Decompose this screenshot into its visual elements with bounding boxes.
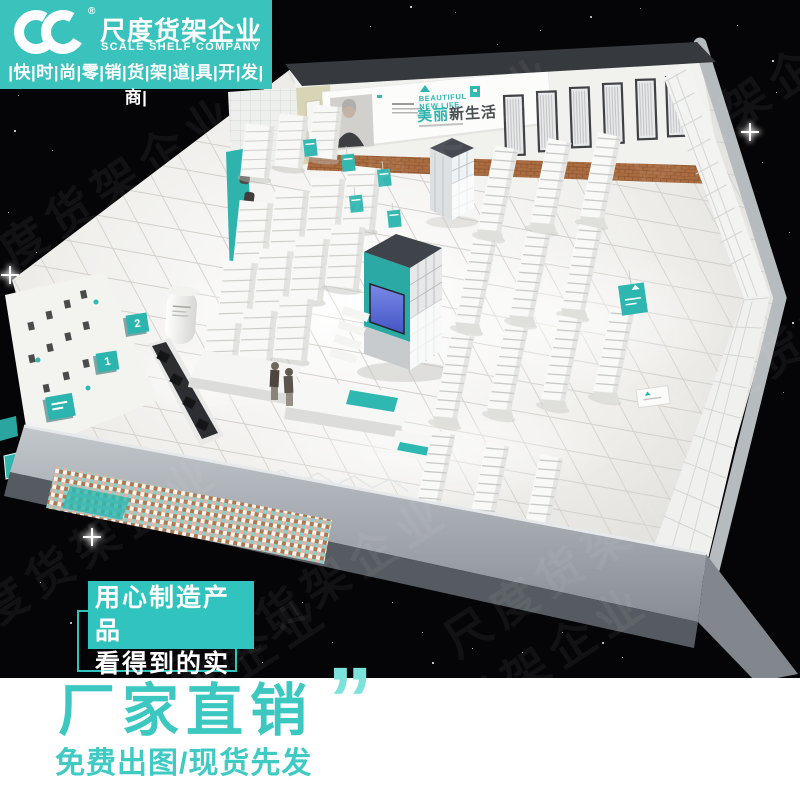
brand-header: ® 尺度货架企业 SCALE SHELF COMPANY |快|时|尚|零|销|…	[0, 0, 272, 89]
banner-title-cn-accent: 美丽	[417, 106, 450, 125]
company-name-en: SCALE SHELF COMPANY	[101, 41, 261, 53]
slogan-line1: 用心制造产品	[95, 582, 254, 648]
double-c-monogram-logo-icon	[14, 9, 90, 55]
aisle-banner-white	[636, 386, 670, 408]
queue-sign-1: 1	[96, 350, 120, 372]
queue-sign-2: 2	[126, 312, 150, 334]
queue-sign-logo	[45, 393, 76, 420]
footer-subline: 免费出图/现货先发	[55, 738, 312, 782]
poster-canvas: 尺度货架企业 尺度货架企业 尺度货架企业 尺度货架企业 尺度货架企业 尺度货架企…	[0, 0, 800, 800]
slogan-box: 用心制造产品 看得到的实力	[88, 581, 254, 649]
banner-title-cn-rest: 新生活	[449, 104, 498, 123]
quote-mark: ”	[327, 654, 373, 746]
brand-tagline: |快|时|尚|零|销|货|架|道|具|开|发|商|	[0, 58, 272, 108]
footer-band: 厂家直销 ” 免费出图/现货先发	[0, 678, 800, 800]
registered-mark: ®	[88, 6, 95, 17]
footer-headline: 厂家直销	[58, 682, 314, 740]
